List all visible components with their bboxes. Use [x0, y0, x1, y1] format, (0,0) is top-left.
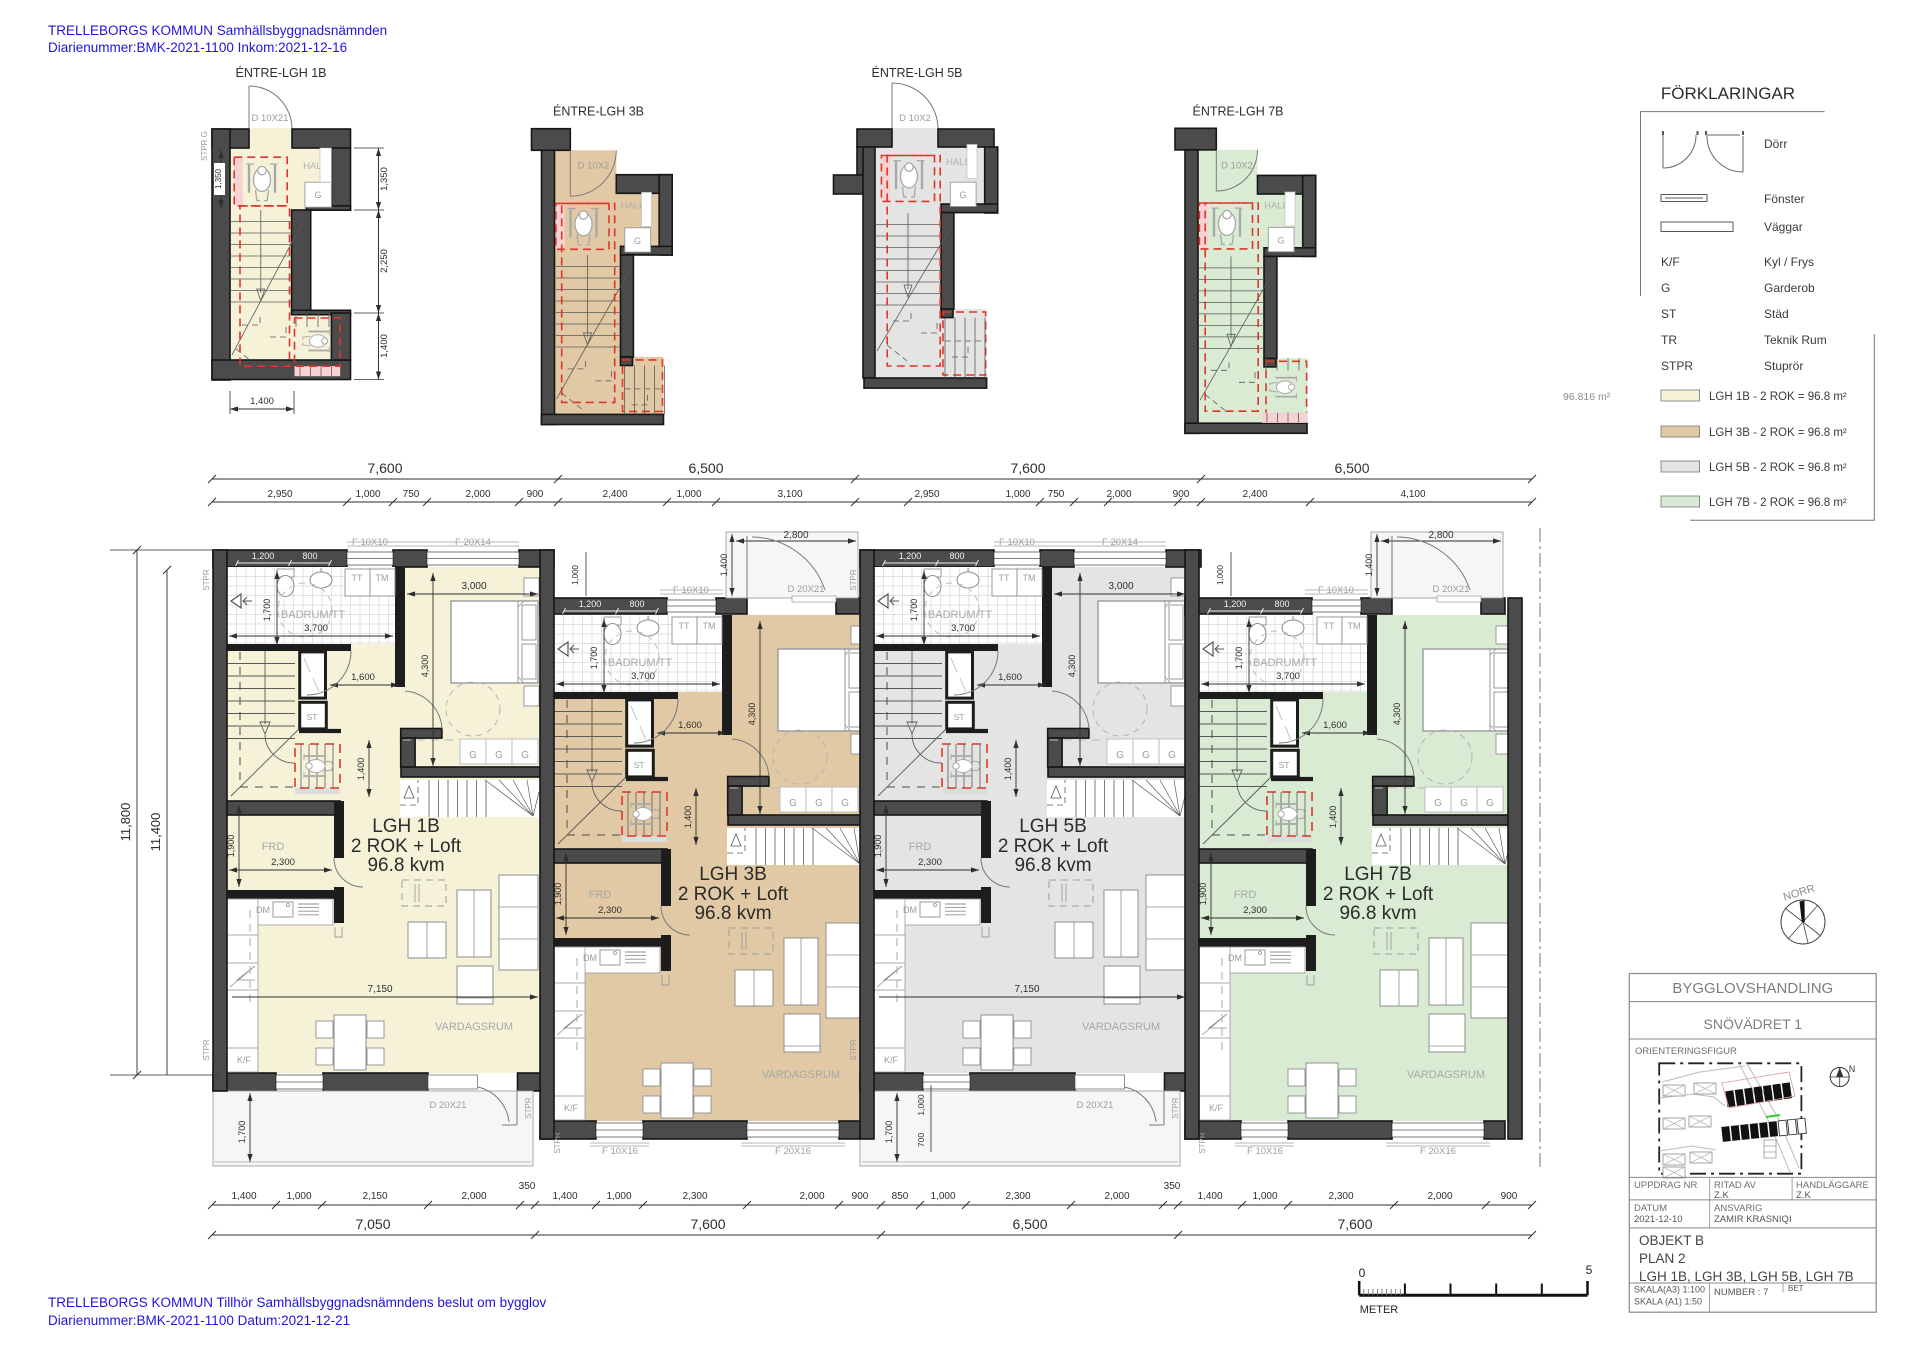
- svg-text:2,150: 2,150: [362, 1191, 387, 1202]
- svg-text:1,000: 1,000: [286, 1191, 311, 1202]
- svg-text:3,100: 3,100: [777, 489, 802, 500]
- svg-text:900: 900: [1501, 1191, 1518, 1202]
- svg-text:G: G: [1142, 750, 1150, 761]
- svg-text:G: G: [959, 190, 966, 200]
- svg-text:1,000: 1,000: [930, 1191, 955, 1202]
- svg-text:7,600: 7,600: [1010, 460, 1045, 476]
- svg-text:D 10X2: D 10X2: [578, 161, 610, 172]
- svg-text:2,250: 2,250: [379, 249, 390, 273]
- svg-text:800: 800: [949, 551, 964, 561]
- svg-text:F 20X16: F 20X16: [775, 1146, 811, 1157]
- svg-text:1,700: 1,700: [1234, 647, 1244, 670]
- svg-text:6,500: 6,500: [1334, 460, 1369, 476]
- svg-text:FRD: FRD: [589, 889, 612, 901]
- svg-text:F 10X16: F 10X16: [1247, 1146, 1283, 1157]
- svg-text:1,400: 1,400: [250, 396, 274, 407]
- svg-text:STPR: STPR: [202, 569, 211, 591]
- svg-text:K/F: K/F: [564, 1103, 579, 1113]
- svg-text:TT: TT: [1324, 621, 1335, 631]
- svg-text:2,800: 2,800: [783, 530, 808, 541]
- svg-text:UPPDRAG NR: UPPDRAG NR: [1634, 1180, 1697, 1191]
- svg-text:G: G: [521, 750, 529, 761]
- svg-text:2,300: 2,300: [1005, 1191, 1030, 1202]
- svg-text:350: 350: [1164, 1181, 1181, 1192]
- svg-text:LGH 5B - 2 ROK = 96.8 m²: LGH 5B - 2 ROK = 96.8 m²: [1709, 462, 1847, 474]
- svg-text:BADRUM/TT: BADRUM/TT: [281, 609, 345, 621]
- svg-text:VARDAGSRUM: VARDAGSRUM: [435, 1021, 513, 1033]
- svg-text:G: G: [469, 750, 477, 761]
- svg-text:3,700: 3,700: [951, 623, 975, 634]
- svg-text:LGH 7B: LGH 7B: [1344, 864, 1412, 885]
- svg-text:3,700: 3,700: [304, 623, 328, 634]
- svg-text:D 20X21: D 20X21: [788, 584, 825, 595]
- svg-text:LGH 1B, LGH 3B, LGH 5B, LGH 7B: LGH 1B, LGH 3B, LGH 5B, LGH 7B: [1639, 1269, 1854, 1284]
- svg-text:FÖRKLARINGAR: FÖRKLARINGAR: [1661, 84, 1795, 103]
- svg-text:4,300: 4,300: [747, 703, 757, 726]
- svg-text:7,150: 7,150: [1014, 984, 1039, 995]
- svg-text:1,400: 1,400: [1003, 758, 1013, 781]
- svg-text:Diarienummer:BMK-2021-1100 Dat: Diarienummer:BMK-2021-1100 Datum:2021-12…: [48, 1313, 350, 1328]
- svg-text:STPR: STPR: [202, 1039, 211, 1061]
- svg-text:METER: METER: [1360, 1304, 1399, 1316]
- svg-text:LGH 7B - 2 ROK = 96.8 m²: LGH 7B - 2 ROK = 96.8 m²: [1709, 497, 1847, 509]
- svg-text:1,350: 1,350: [379, 167, 390, 191]
- svg-text:96.8 kvm: 96.8 kvm: [367, 855, 444, 876]
- svg-text:96.8 kvm: 96.8 kvm: [1014, 855, 1091, 876]
- svg-text:K/F: K/F: [1209, 1103, 1224, 1113]
- svg-text:3,700: 3,700: [1276, 671, 1300, 682]
- svg-text:1,200: 1,200: [1224, 599, 1247, 609]
- svg-text:Städ: Städ: [1764, 307, 1789, 321]
- svg-text:1,200: 1,200: [899, 551, 922, 561]
- svg-text:STPR: STPR: [1661, 359, 1693, 373]
- svg-text:2021-12-10: 2021-12-10: [1634, 1214, 1683, 1225]
- svg-text:TT: TT: [679, 621, 690, 631]
- svg-text:SKALA(A3) 1:100: SKALA(A3) 1:100: [1634, 1285, 1705, 1295]
- svg-text:G: G: [789, 798, 797, 809]
- svg-text:K/F: K/F: [1661, 255, 1680, 269]
- svg-text:2,300: 2,300: [1328, 1191, 1353, 1202]
- svg-text:STPR: STPR: [849, 1039, 858, 1061]
- svg-text:BYGGLOVSHANDLING: BYGGLOVSHANDLING: [1672, 980, 1833, 997]
- svg-text:SKALA (A1) 1:50: SKALA (A1) 1:50: [1634, 1297, 1702, 1307]
- svg-text:850: 850: [892, 1191, 909, 1202]
- svg-text:ZAMIR KRASNIQI: ZAMIR KRASNIQI: [1714, 1214, 1792, 1225]
- svg-text:TRELLEBORGS KOMMUN Samhällsbyg: TRELLEBORGS KOMMUN Samhällsbyggnadsnämnd…: [48, 23, 387, 38]
- svg-text:800: 800: [1274, 599, 1289, 609]
- svg-text:N: N: [1849, 1064, 1856, 1074]
- svg-text:TM: TM: [1348, 621, 1361, 631]
- svg-text:2,300: 2,300: [918, 857, 942, 868]
- svg-text:2,300: 2,300: [598, 905, 622, 916]
- svg-text:FRD: FRD: [1234, 889, 1257, 901]
- svg-text:6,500: 6,500: [688, 460, 723, 476]
- svg-text:G: G: [634, 236, 641, 246]
- svg-text:2,300: 2,300: [271, 857, 295, 868]
- svg-text:HALL: HALL: [621, 201, 645, 212]
- svg-text:Garderob: Garderob: [1764, 281, 1815, 295]
- svg-text:2,000: 2,000: [1427, 1191, 1452, 1202]
- svg-text:D 20X21: D 20X21: [430, 1100, 467, 1111]
- svg-text:2,000: 2,000: [461, 1191, 486, 1202]
- svg-text:ÉNTRE-LGH 5B: ÉNTRE-LGH 5B: [872, 65, 963, 80]
- svg-text:BADRUM/TT: BADRUM/TT: [928, 609, 992, 621]
- svg-text:2,950: 2,950: [914, 489, 939, 500]
- svg-text:FRD: FRD: [262, 841, 285, 853]
- svg-text:1,700: 1,700: [884, 1121, 894, 1144]
- svg-text:HALL: HALL: [946, 157, 970, 168]
- svg-text:4,300: 4,300: [1392, 703, 1402, 726]
- svg-text:900: 900: [1173, 489, 1190, 500]
- svg-text:1,400: 1,400: [1328, 806, 1338, 829]
- svg-text:G: G: [1486, 798, 1494, 809]
- svg-text:1,700: 1,700: [909, 599, 919, 622]
- svg-text:2,000: 2,000: [1106, 489, 1131, 500]
- svg-text:2,800: 2,800: [1428, 530, 1453, 541]
- svg-text:1,000: 1,000: [571, 564, 580, 585]
- svg-text:Teknik Rum: Teknik Rum: [1764, 333, 1827, 347]
- svg-text:HALL: HALL: [1264, 200, 1288, 211]
- svg-text:G: G: [1661, 281, 1670, 295]
- svg-text:VARDAGSRUM: VARDAGSRUM: [1082, 1021, 1160, 1033]
- svg-text:800: 800: [629, 599, 644, 609]
- svg-text:VARDAGSRUM: VARDAGSRUM: [1407, 1069, 1485, 1081]
- svg-text:750: 750: [403, 489, 420, 500]
- svg-text:1,200: 1,200: [252, 551, 275, 561]
- svg-text:LGH 1B: LGH 1B: [372, 816, 440, 837]
- svg-text:0: 0: [1359, 1266, 1366, 1280]
- svg-text:6,500: 6,500: [1012, 1216, 1047, 1232]
- svg-text:Z.K: Z.K: [1796, 1190, 1811, 1201]
- svg-text:2,400: 2,400: [602, 489, 627, 500]
- svg-text:Diarienummer:BMK-2021-1100 Ink: Diarienummer:BMK-2021-1100 Inkom:2021-12…: [48, 40, 347, 55]
- svg-text:2,300: 2,300: [1243, 905, 1267, 916]
- svg-text:7,600: 7,600: [367, 460, 402, 476]
- svg-text:STPR: STPR: [849, 569, 858, 591]
- svg-text:LGH 1B - 2 ROK = 96.8 m²: LGH 1B - 2 ROK = 96.8 m²: [1709, 391, 1847, 403]
- svg-text:1,600: 1,600: [1323, 720, 1347, 731]
- svg-text:96.8 kvm: 96.8 kvm: [1339, 903, 1416, 924]
- svg-text:BADRUM/TT: BADRUM/TT: [608, 657, 672, 669]
- svg-text:900: 900: [527, 489, 544, 500]
- svg-text:Fönster: Fönster: [1764, 192, 1805, 206]
- svg-text:900: 900: [852, 1191, 869, 1202]
- svg-text:7,150: 7,150: [367, 984, 392, 995]
- svg-text:STPR G: STPR G: [200, 131, 209, 161]
- svg-text:350: 350: [519, 1181, 536, 1192]
- svg-text:1,600: 1,600: [998, 672, 1022, 683]
- svg-text:G: G: [841, 798, 849, 809]
- svg-text:2,300: 2,300: [682, 1191, 707, 1202]
- svg-text:ÉNTRE-LGH 1B: ÉNTRE-LGH 1B: [236, 65, 327, 80]
- svg-text:2,950: 2,950: [267, 489, 292, 500]
- svg-text:DATUM: DATUM: [1634, 1203, 1667, 1214]
- svg-text:ORIENTERINGSFIGUR: ORIENTERINGSFIGUR: [1635, 1046, 1737, 1057]
- svg-text:OBJEKT B: OBJEKT B: [1639, 1233, 1704, 1248]
- svg-text:2 ROK + Loft: 2 ROK + Loft: [998, 836, 1109, 857]
- svg-text:STPR: STPR: [524, 1097, 533, 1119]
- svg-text:ST: ST: [307, 712, 318, 722]
- svg-text:DM: DM: [256, 905, 270, 915]
- svg-text:G: G: [1434, 798, 1442, 809]
- svg-text:1,400: 1,400: [719, 554, 729, 577]
- svg-text:11,400: 11,400: [148, 813, 163, 852]
- svg-text:ST: ST: [1661, 307, 1677, 321]
- svg-text:1,000: 1,000: [1005, 489, 1030, 500]
- svg-text:1,200: 1,200: [579, 599, 602, 609]
- svg-text:D 20X21: D 20X21: [1433, 584, 1470, 595]
- svg-text:1,400: 1,400: [1364, 554, 1374, 577]
- svg-text:ST: ST: [1279, 760, 1290, 770]
- svg-text:D 20X21: D 20X21: [1077, 1100, 1114, 1111]
- svg-text:K/F: K/F: [237, 1055, 252, 1065]
- svg-text:TM: TM: [703, 621, 716, 631]
- svg-text:2,000: 2,000: [799, 1191, 824, 1202]
- svg-text:ANSVARIG: ANSVARIG: [1714, 1203, 1762, 1214]
- svg-text:G: G: [1460, 798, 1468, 809]
- svg-text:1,000: 1,000: [916, 1094, 926, 1116]
- svg-text:TM: TM: [376, 573, 389, 583]
- svg-text:SNÖVÄDRET 1: SNÖVÄDRET 1: [1704, 1015, 1803, 1032]
- svg-text:Z.K: Z.K: [1714, 1190, 1729, 1201]
- svg-text:1,600: 1,600: [351, 672, 375, 683]
- svg-text:1,350: 1,350: [214, 168, 223, 189]
- svg-text:2 ROK + Loft: 2 ROK + Loft: [1323, 884, 1434, 905]
- svg-text:NUMBER : 7: NUMBER : 7: [1714, 1287, 1768, 1298]
- svg-text:Kyl / Frys: Kyl / Frys: [1764, 255, 1814, 269]
- svg-text:DM: DM: [1228, 953, 1242, 963]
- svg-text:5: 5: [1586, 1263, 1593, 1277]
- svg-text:ÉNTRE-LGH 7B: ÉNTRE-LGH 7B: [1193, 103, 1284, 118]
- svg-text:TM: TM: [1023, 573, 1036, 583]
- svg-text:DM: DM: [583, 953, 597, 963]
- svg-text:K/F: K/F: [884, 1055, 899, 1065]
- svg-text:1,400: 1,400: [356, 758, 366, 781]
- svg-text:1,600: 1,600: [678, 720, 702, 731]
- svg-text:7,050: 7,050: [355, 1216, 390, 1232]
- svg-text:G: G: [314, 190, 321, 200]
- svg-text:1,000: 1,000: [355, 489, 380, 500]
- svg-text:1,000: 1,000: [1252, 1191, 1277, 1202]
- svg-text:ÉNTRE-LGH 3B: ÉNTRE-LGH 3B: [553, 104, 644, 119]
- svg-text:7,600: 7,600: [1337, 1216, 1372, 1232]
- svg-text:1,700: 1,700: [237, 1121, 247, 1144]
- svg-text:4,300: 4,300: [1067, 655, 1077, 678]
- svg-text:D 10X21: D 10X21: [252, 113, 289, 124]
- svg-text:1,000: 1,000: [1216, 564, 1225, 585]
- svg-text:G: G: [1168, 750, 1176, 761]
- svg-text:2 ROK + Loft: 2 ROK + Loft: [678, 884, 789, 905]
- svg-text:96.8 kvm: 96.8 kvm: [694, 903, 771, 924]
- svg-text:11,800: 11,800: [118, 803, 133, 842]
- svg-text:G: G: [1277, 235, 1284, 245]
- svg-text:1,400: 1,400: [231, 1191, 256, 1202]
- svg-text:TRELLEBORGS KOMMUN Tillhör Sam: TRELLEBORGS KOMMUN Tillhör Samhällsbyggn…: [48, 1295, 546, 1310]
- svg-text:1,000: 1,000: [676, 489, 701, 500]
- svg-text:4,300: 4,300: [420, 655, 430, 678]
- svg-text:3,000: 3,000: [1108, 581, 1133, 592]
- svg-text:BET: BET: [1788, 1284, 1804, 1293]
- svg-text:STPR: STPR: [1171, 1097, 1180, 1119]
- svg-text:2,400: 2,400: [1242, 489, 1267, 500]
- svg-text:ST: ST: [954, 712, 965, 722]
- svg-text:Väggar: Väggar: [1764, 220, 1803, 234]
- svg-text:2,000: 2,000: [1104, 1191, 1129, 1202]
- svg-text:F 10X16: F 10X16: [602, 1146, 638, 1157]
- svg-text:LGH 5B: LGH 5B: [1019, 816, 1087, 837]
- svg-text:VARDAGSRUM: VARDAGSRUM: [762, 1069, 840, 1081]
- svg-text:1,700: 1,700: [262, 599, 272, 622]
- svg-text:D 10X2: D 10X2: [899, 113, 931, 124]
- svg-text:BADRUM/TT: BADRUM/TT: [1253, 657, 1317, 669]
- svg-text:3,000: 3,000: [461, 581, 486, 592]
- svg-text:TT: TT: [999, 573, 1010, 583]
- svg-text:D 10X2: D 10X2: [1221, 160, 1253, 171]
- svg-text:4,100: 4,100: [1400, 489, 1425, 500]
- svg-text:G: G: [815, 798, 823, 809]
- svg-text:G: G: [495, 750, 503, 761]
- svg-text:1,400: 1,400: [1197, 1191, 1222, 1202]
- svg-text:LGH 3B: LGH 3B: [699, 864, 767, 885]
- svg-text:LGH 3B - 2 ROK = 96.8 m²: LGH 3B - 2 ROK = 96.8 m²: [1709, 427, 1847, 439]
- svg-text:Stuprör: Stuprör: [1764, 359, 1803, 373]
- svg-text:7,600: 7,600: [690, 1216, 725, 1232]
- svg-text:96.816 m²: 96.816 m²: [1563, 391, 1611, 403]
- svg-text:800: 800: [302, 551, 317, 561]
- svg-text:2,000: 2,000: [465, 489, 490, 500]
- svg-text:FRD: FRD: [909, 841, 932, 853]
- svg-text:DM: DM: [903, 905, 917, 915]
- svg-text:F 20X16: F 20X16: [1420, 1146, 1456, 1157]
- svg-text:1,400: 1,400: [683, 806, 693, 829]
- svg-text:TT: TT: [352, 573, 363, 583]
- svg-text:1,700: 1,700: [589, 647, 599, 670]
- svg-text:1,000: 1,000: [606, 1191, 631, 1202]
- svg-text:750: 750: [1048, 489, 1065, 500]
- svg-text:1,400: 1,400: [552, 1191, 577, 1202]
- svg-text:3,700: 3,700: [631, 671, 655, 682]
- svg-text:1,400: 1,400: [379, 334, 390, 358]
- svg-text:TR: TR: [1661, 333, 1677, 347]
- svg-text:2 ROK + Loft: 2 ROK + Loft: [351, 836, 462, 857]
- svg-text:PLAN 2: PLAN 2: [1639, 1251, 1686, 1266]
- svg-text:ST: ST: [634, 760, 645, 770]
- svg-text:700: 700: [916, 1133, 926, 1147]
- svg-text:Dörr: Dörr: [1764, 137, 1787, 151]
- svg-text:G: G: [1116, 750, 1124, 761]
